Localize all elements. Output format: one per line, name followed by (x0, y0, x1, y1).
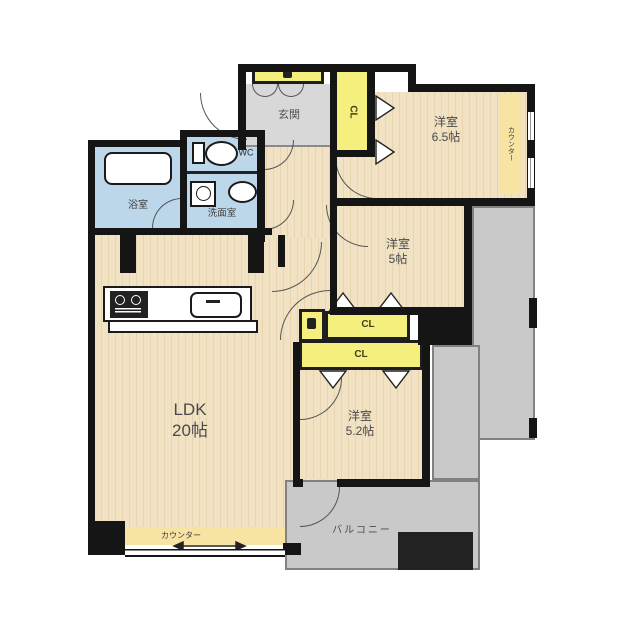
wall (330, 157, 337, 310)
washing-machine-drum-icon (196, 186, 211, 201)
wall (283, 543, 301, 555)
bedroom52-closet-label: CL (354, 349, 367, 362)
wall (238, 64, 246, 150)
wall (88, 140, 187, 147)
bedroom65-counter-label: カウンター (506, 127, 515, 162)
wall (464, 198, 472, 313)
entrance-label: 玄関 (278, 109, 300, 123)
ldk-window (125, 549, 285, 557)
wall-stub (278, 235, 285, 267)
wall (408, 84, 535, 92)
bedroom-52-label: 洋室 5.2帖 (346, 409, 375, 439)
wall-stub (120, 228, 136, 273)
room-name: 洋室 (432, 115, 461, 130)
room-name: LDK (172, 399, 208, 420)
wall (180, 137, 187, 235)
wall (367, 64, 375, 157)
room-name: 洋室 (386, 237, 410, 252)
ldk-label: LDK 20帖 (172, 399, 208, 442)
room-name: 洋室 (346, 409, 375, 424)
wall (88, 140, 95, 235)
ldk-counter-label: カウンター (161, 531, 201, 541)
sink-basin-icon (228, 181, 257, 203)
kitchen-sink (190, 292, 242, 318)
wall (88, 521, 125, 555)
shoebox-glyph-icon (283, 71, 292, 78)
entrance-closet-label: CL (346, 105, 359, 118)
room-size: 6.5帖 (432, 130, 461, 145)
kitchen-shelf (108, 320, 258, 333)
wall (330, 64, 337, 157)
wall (293, 342, 300, 487)
side-gray-area-upper (472, 206, 535, 440)
stove-grill-icon (115, 308, 141, 314)
wall (88, 235, 95, 555)
bedroom5-closet-label: CL (361, 319, 374, 332)
faucet-icon (206, 300, 220, 303)
bedroom-5-label: 洋室 5帖 (386, 237, 410, 267)
side-gray-area-lower (432, 345, 480, 480)
toilet-bowl-icon (205, 141, 238, 166)
room-size: 20帖 (172, 420, 208, 441)
window (528, 158, 534, 188)
ldk-counter-strip (123, 527, 285, 545)
wall (330, 198, 535, 206)
wall (330, 150, 375, 157)
wall (422, 338, 430, 487)
wall (293, 479, 303, 487)
window (528, 112, 534, 140)
balcony-equipment-block (398, 532, 473, 570)
bedroom-65-label: 洋室 6.5帖 (432, 115, 461, 145)
washroom-label: 洗面室 (208, 208, 237, 220)
wall (88, 228, 272, 235)
wc-washroom-divider (187, 171, 257, 174)
toilet-tank-icon (192, 142, 205, 164)
bathtub-icon (104, 152, 172, 185)
stove-burner-icon (115, 295, 125, 305)
wall-tick (529, 298, 537, 328)
wall-stub (248, 228, 264, 273)
wall (180, 130, 265, 137)
bath-label: 浴室 (128, 200, 148, 213)
wall-tick (529, 418, 537, 438)
wall (330, 307, 472, 315)
room-size: 5.2帖 (346, 424, 375, 439)
wall (337, 479, 430, 487)
room-size: 5帖 (386, 252, 410, 267)
wall (238, 64, 415, 72)
stove-burner-icon (131, 295, 141, 305)
floor-plan: LDK 20帖 洋室 6.5帖 洋室 5帖 洋室 5.2帖 玄関 浴室 洗面室 … (0, 0, 640, 640)
wc-label: WC (239, 147, 254, 158)
balcony-label: バルコニー (332, 525, 392, 538)
wall (257, 130, 265, 242)
